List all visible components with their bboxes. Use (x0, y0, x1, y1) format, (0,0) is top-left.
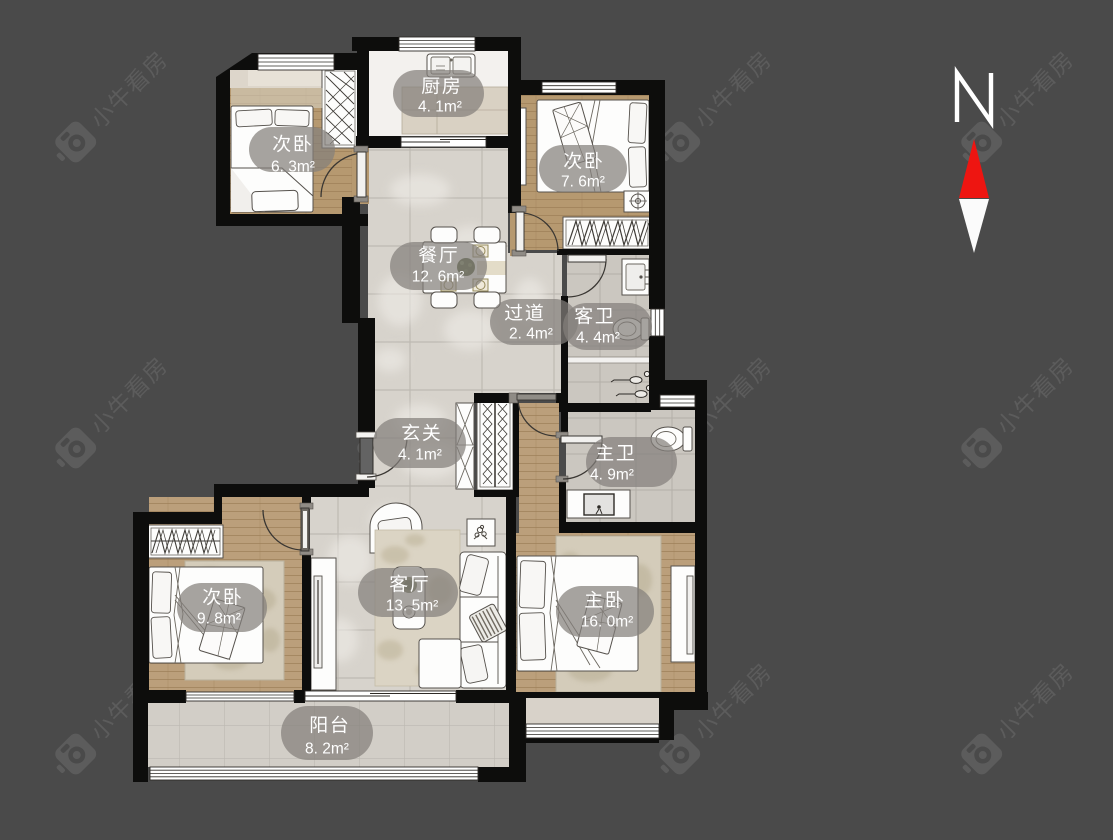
svg-text:6. 3m²: 6. 3m² (271, 159, 315, 176)
svg-text:16. 0m²: 16. 0m² (581, 614, 634, 631)
svg-text:2. 4m²: 2. 4m² (509, 326, 553, 343)
svg-text:9. 8m²: 9. 8m² (197, 611, 241, 628)
svg-text:4. 1m²: 4. 1m² (418, 99, 462, 116)
svg-text:4. 1m²: 4. 1m² (398, 447, 442, 464)
svg-text:12. 6m²: 12. 6m² (412, 269, 465, 286)
svg-text:8. 2m²: 8. 2m² (305, 741, 349, 758)
svg-text:4. 4m²: 4. 4m² (576, 330, 620, 347)
svg-text:13. 5m²: 13. 5m² (386, 598, 439, 615)
svg-text:4. 9m²: 4. 9m² (590, 467, 634, 484)
svg-text:7. 6m²: 7. 6m² (561, 174, 605, 191)
